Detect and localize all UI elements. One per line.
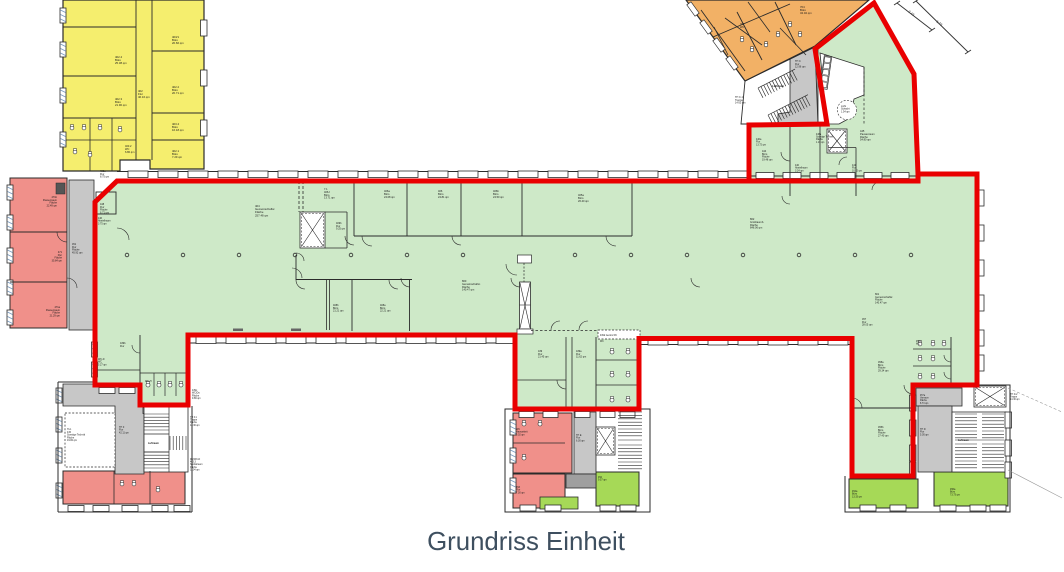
svg-text:8.73 qm: 8.73 qm [920, 403, 928, 405]
svg-text:3.24 qm: 3.24 qm [795, 169, 804, 172]
svg-text:WC: WC [600, 341, 604, 343]
svg-text:9.86 qm: 9.86 qm [192, 397, 201, 400]
svg-text:Treppe: Treppe [190, 419, 198, 422]
svg-text:73.73 qm: 73.73 qm [950, 493, 960, 496]
svg-text:45.92 qm: 45.92 qm [72, 251, 82, 254]
svg-text:28.05 qm: 28.05 qm [862, 324, 872, 327]
svg-text:13.72 qm: 13.72 qm [756, 143, 766, 146]
svg-text:257.48 qm: 257.48 qm [255, 213, 269, 217]
svg-text:21.29 qm: 21.29 qm [50, 314, 60, 317]
svg-text:Luftraum: Luftraum [772, 84, 785, 88]
svg-text:1.16 qm: 1.16 qm [816, 142, 824, 144]
svg-text:24.81 qm: 24.81 qm [438, 195, 449, 199]
svg-text:22.49 qm: 22.49 qm [47, 204, 57, 207]
svg-text:6.30 qm: 6.30 qm [576, 439, 585, 442]
svg-text:WC: WC [916, 344, 920, 346]
svg-text:34.02 qm: 34.02 qm [800, 11, 812, 15]
svg-text:42.11 qm: 42.11 qm [119, 431, 129, 434]
svg-text:439d Gerät 2.06: 439d Gerät 2.06 [600, 334, 617, 337]
svg-text:24.50 qm: 24.50 qm [493, 195, 504, 199]
svg-text:9.57 qm: 9.57 qm [598, 479, 607, 482]
svg-text:24.08 qm: 24.08 qm [384, 195, 395, 199]
svg-text:WC: WC [740, 26, 744, 29]
svg-text:Flur: Flur [120, 345, 124, 348]
svg-text:54.80 qm: 54.80 qm [860, 138, 871, 142]
svg-text:140.47 qm: 140.47 qm [462, 288, 474, 292]
svg-text:5.05 qm: 5.05 qm [920, 433, 929, 436]
svg-text:20.71 qm: 20.71 qm [172, 91, 184, 95]
svg-text:Luftraum: Luftraum [958, 439, 970, 442]
svg-text:21.90 qm: 21.90 qm [115, 103, 127, 107]
svg-text:8.75 qm: 8.75 qm [100, 176, 109, 179]
svg-text:21.21 qm: 21.21 qm [333, 310, 343, 313]
svg-text:19.48 qm: 19.48 qm [762, 158, 772, 161]
svg-text:29.34 qm: 29.34 qm [878, 369, 888, 372]
svg-text:13.71 qm: 13.71 qm [324, 196, 335, 200]
svg-text:Sonstige Technik: Sonstige Technik [816, 136, 834, 139]
svg-text:12.96 qm: 12.96 qm [795, 66, 805, 69]
svg-text:140.47 qm: 140.47 qm [875, 301, 887, 304]
svg-text:25.38 qm: 25.38 qm [115, 61, 127, 65]
svg-text:7.29 qm: 7.29 qm [172, 155, 183, 159]
svg-text:14.30 qm: 14.30 qm [1010, 399, 1020, 401]
svg-text:Luftraum: Luftraum [148, 442, 160, 445]
svg-text:Grundriss Einheit: Grundriss Einheit [427, 528, 625, 556]
svg-text:7.30 qm: 7.30 qm [516, 491, 525, 494]
svg-text:16.18 qm: 16.18 qm [172, 128, 184, 132]
svg-text:20.66 qm: 20.66 qm [172, 41, 184, 45]
svg-text:3.75 qm: 3.75 qm [98, 222, 107, 225]
svg-text:35.84 qm: 35.84 qm [52, 259, 62, 262]
svg-text:14.30 qm: 14.30 qm [190, 425, 200, 427]
svg-text:46.16 qm: 46.16 qm [138, 95, 150, 99]
svg-text:10.82 qm: 10.82 qm [852, 169, 862, 172]
svg-text:11.62 qm: 11.62 qm [576, 356, 586, 359]
svg-text:22.21 qm: 22.21 qm [380, 310, 390, 313]
svg-text:9.25 qm: 9.25 qm [336, 228, 345, 231]
svg-text:5.27 qm: 5.27 qm [98, 363, 107, 366]
svg-text:26.40 qm: 26.40 qm [578, 199, 589, 203]
svg-text:1.54 qm: 1.54 qm [841, 110, 850, 113]
svg-text:5.02 qm: 5.02 qm [516, 433, 525, 436]
svg-text:Vorraum: Vorraum [920, 397, 929, 400]
svg-text:21.45 qm: 21.45 qm [538, 356, 548, 359]
svg-text:13.33 qm: 13.33 qm [852, 495, 862, 498]
svg-text:846.06 qm: 846.06 qm [750, 226, 762, 230]
svg-text:Treppe: Treppe [1010, 396, 1018, 399]
svg-text:6.80 qm: 6.80 qm [125, 150, 134, 154]
svg-text:19.82 qm: 19.82 qm [67, 439, 77, 442]
svg-text:27.40 qm: 27.40 qm [878, 434, 888, 437]
svg-text:11.04 qm: 11.04 qm [190, 469, 199, 471]
svg-text:Sanitärraum: Sanitärraum [190, 463, 203, 466]
svg-text:WC-H: WC-H [145, 380, 152, 383]
svg-text:14.63 qm: 14.63 qm [735, 102, 745, 105]
